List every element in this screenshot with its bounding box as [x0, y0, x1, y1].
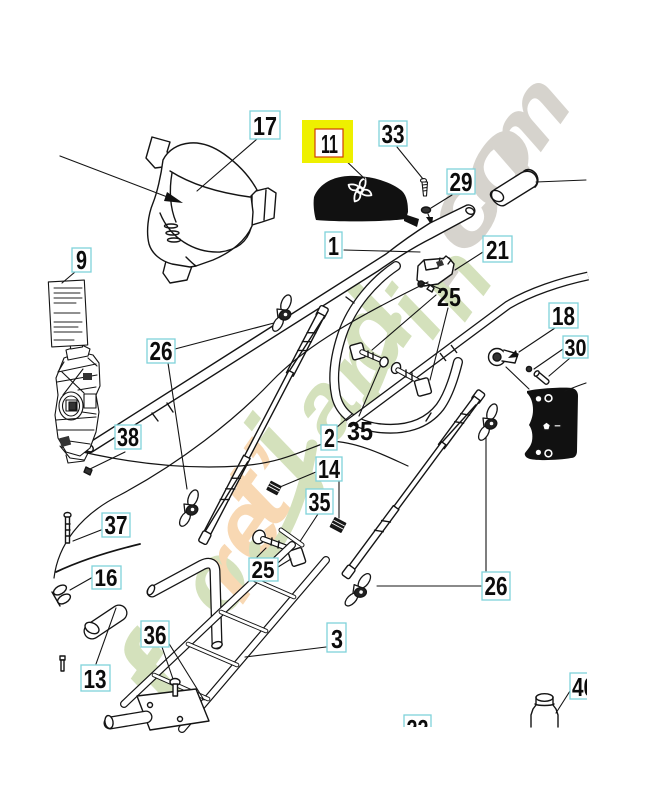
svg-text:21: 21 [486, 235, 509, 265]
svg-text:17: 17 [253, 111, 277, 141]
svg-text:11: 11 [321, 129, 338, 159]
svg-text:38: 38 [117, 422, 139, 452]
svg-text:35: 35 [309, 487, 331, 517]
svg-text:37: 37 [105, 510, 128, 540]
svg-text:18: 18 [552, 301, 575, 331]
svg-text:29: 29 [450, 167, 473, 197]
svg-text:2: 2 [324, 423, 335, 453]
svg-text:36: 36 [144, 620, 167, 650]
svg-text:35: 35 [347, 416, 373, 446]
svg-text:33: 33 [382, 119, 405, 149]
svg-text:16: 16 [95, 565, 118, 592]
svg-text:14: 14 [318, 454, 340, 484]
svg-text:25: 25 [437, 282, 461, 312]
svg-text:26: 26 [150, 336, 173, 366]
svg-text:30: 30 [565, 335, 587, 362]
svg-text:1: 1 [328, 231, 339, 261]
svg-text:3: 3 [331, 624, 343, 654]
svg-text:13: 13 [84, 664, 107, 694]
svg-text:9: 9 [76, 245, 87, 275]
svg-text:25: 25 [252, 557, 275, 584]
svg-text:26: 26 [485, 571, 508, 601]
